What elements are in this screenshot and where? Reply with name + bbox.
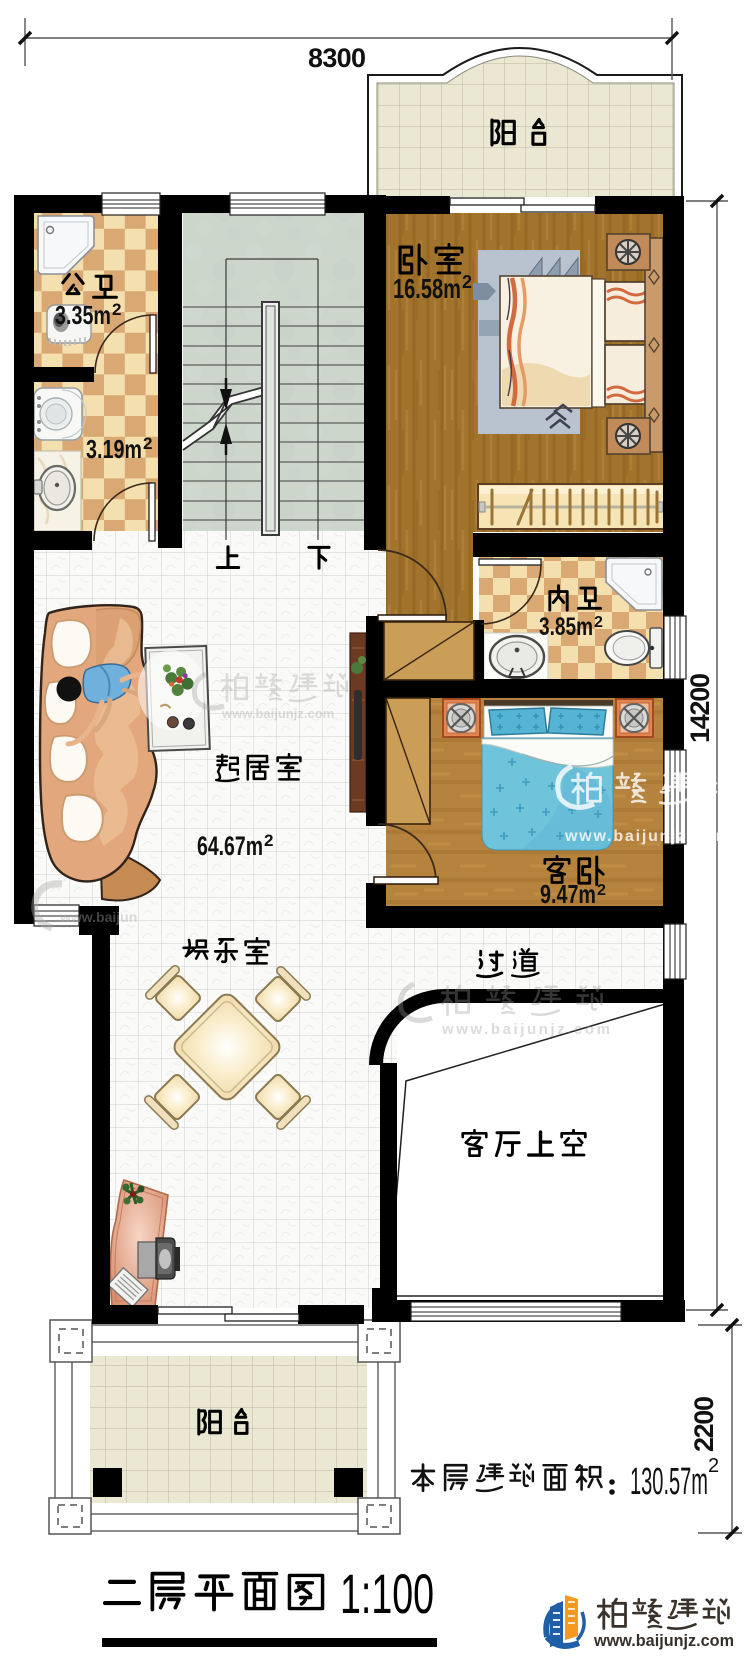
svg-text:www.baijunjz.com: www.baijunjz.com xyxy=(593,1631,734,1650)
svg-text:2: 2 xyxy=(143,434,152,453)
svg-text:2: 2 xyxy=(594,614,603,631)
svg-text:www.baijun: www.baijun xyxy=(59,909,137,925)
svg-text:3.85m: 3.85m xyxy=(539,613,593,641)
svg-text:2: 2 xyxy=(708,1455,719,1477)
svg-text:2: 2 xyxy=(597,882,606,899)
svg-text:2: 2 xyxy=(112,300,121,319)
svg-text:2200: 2200 xyxy=(689,1396,719,1452)
svg-text:16.58m: 16.58m xyxy=(393,273,461,304)
svg-text:www.baijunjz.com: www.baijunjz.com xyxy=(221,706,334,721)
svg-text:2: 2 xyxy=(462,272,472,292)
svg-text:14200: 14200 xyxy=(685,673,715,743)
svg-text:3.19m: 3.19m xyxy=(86,434,142,464)
svg-text:64.67m: 64.67m xyxy=(197,831,263,861)
svg-text:3.35m: 3.35m xyxy=(55,300,111,330)
svg-text:2: 2 xyxy=(264,831,273,850)
svg-text:9.47m: 9.47m xyxy=(540,879,596,909)
svg-text:130.57m: 130.57m xyxy=(630,1461,708,1503)
svg-text:1:100: 1:100 xyxy=(340,1562,434,1625)
svg-text:8300: 8300 xyxy=(308,43,366,73)
